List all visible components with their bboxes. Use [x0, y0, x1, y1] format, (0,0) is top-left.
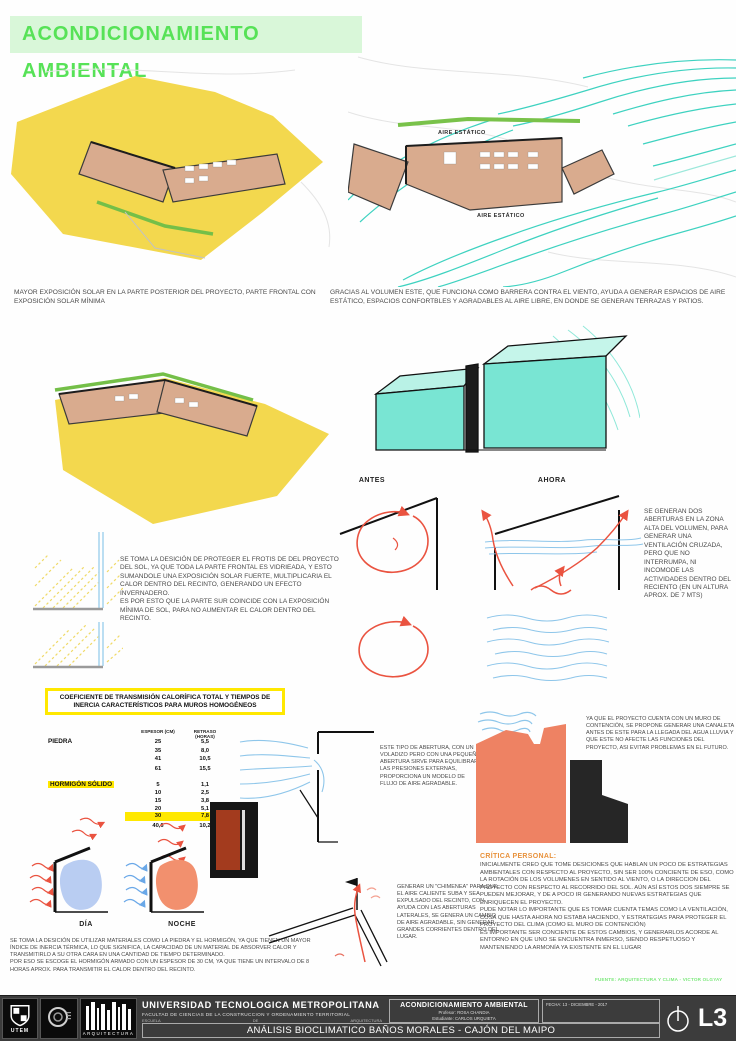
wall-section-detail [210, 802, 258, 878]
terrain-shape [476, 724, 566, 843]
table-cell: 8,0 [188, 748, 222, 754]
antes-section [340, 498, 437, 590]
col-header-retraso: RETRASO (HORAS) [188, 729, 222, 739]
university-block: UNIVERSIDAD TECNOLOGICA METROPOLITANA FA… [142, 1000, 386, 1023]
footer: UTEM ARQUITECTURA UNIVERSIDAD TECNOLOGIC… [0, 995, 736, 1041]
warm-air-blob [156, 860, 198, 910]
professor-line: Profesor: ROSA CHANDIA [390, 1010, 538, 1015]
sheet-number: L3 [698, 1004, 727, 1033]
antes-label: ANTES [332, 477, 412, 484]
solar-exposure-plan-diagram [5, 62, 335, 284]
sheet-subtitle: ANÁLISIS BIOCLIMATICO BAÑOS MORALES - CA… [142, 1023, 660, 1038]
aire-estatico-label-bottom: AIRE ESTÁTICO [477, 213, 525, 219]
date-box: FECHA: 13 - DICIEMBRE - 2017 [542, 999, 660, 1023]
facultad-circle-icon [46, 1004, 72, 1034]
table-cell: 35 [141, 748, 175, 754]
noche-label: NOCHE [152, 921, 212, 928]
noche-house [124, 848, 204, 912]
viento-caption: GRACIAS AL VOLUMEN ESTE, QUE FUNCIONA CO… [330, 289, 730, 306]
vidrio-text: SE TOMA LA DESICIÓN DE PROTEGER EL FROTI… [120, 556, 348, 624]
page-title: ACONDICIONAMIENTO AMBIENTAL [10, 16, 362, 53]
volume-massing-diagram [368, 322, 640, 474]
student-line: Estudiante: CARLOS URQUIETA [390, 1016, 538, 1021]
project-title: ACONDICIONAMIENTO AMBIENTAL [390, 1002, 538, 1009]
utem-logo-text: UTEM [11, 1028, 29, 1034]
ventilation-sections-diagram [335, 490, 645, 695]
cool-air-blob [60, 860, 102, 910]
fuente-line: FUENTE: ARQUITECTURA Y CLIMA - VICTOR OL… [595, 977, 735, 982]
arquitectura-logo-text: ARQUITECTURA [83, 1031, 134, 1036]
facultad-logo [40, 998, 78, 1039]
poster-board: { "title": "ACONDICIONAMIENTO AMBIENTAL"… [0, 0, 736, 1040]
table-cell: 15,5 [188, 766, 222, 772]
aire-estatico-label-top: AIRE ESTÁTICO [438, 130, 486, 136]
material-hormigon: HORMIGÓN SÓLIDO [48, 781, 114, 788]
chimney-structure [269, 878, 387, 966]
ahora-label: AHORA [512, 477, 592, 484]
chimney-diagram [265, 870, 395, 972]
chimney-flag [345, 878, 357, 886]
critica-texto: INICIALMENTE CREO QUE TOME DESICIONES QU… [480, 862, 736, 952]
col-header-espesor: ESPESOR (CM) [141, 729, 175, 734]
ventilacion-nota: SE GENERAN DOS ABERTURAS EN LA ZONA ALTA… [644, 508, 734, 601]
project-box: ACONDICIONAMIENTO AMBIENTAL Profesor: RO… [389, 999, 539, 1023]
air-flow-lines [240, 740, 324, 798]
floor-plan [348, 138, 614, 210]
heat-mark [335, 954, 344, 956]
green-edge-strip [398, 119, 580, 125]
material-piedra: PIEDRA [48, 738, 72, 745]
contention-wall-shape [570, 760, 628, 843]
ahora-wind-lines-2 [487, 615, 609, 681]
abertura-nota: ESTE TIPO DE ABERTURA, CON UN VOLADIZO P… [380, 745, 482, 788]
ahora-section [483, 496, 643, 594]
north-arrow-icon [664, 1005, 692, 1033]
table-cell: 25 [141, 739, 175, 745]
dia-label: DÍA [58, 921, 114, 928]
arquitectura-logo: ARQUITECTURA [80, 998, 137, 1039]
table-cell: 41 [141, 756, 175, 762]
wind-barrier-plan-diagram [348, 52, 736, 287]
volume-prisms [376, 336, 626, 452]
exhaust-curls [367, 888, 380, 898]
table-cell: 5,5 [188, 739, 222, 745]
muro-nota: YA QUE EL PROYECTO CUENTA CON UN MURO DE… [586, 716, 734, 752]
dia-house [30, 848, 108, 912]
table-cell: 1,1 [188, 782, 222, 788]
utem-logo: UTEM [2, 998, 38, 1039]
critica-heading: CRÍTICA PERSONAL: [480, 853, 556, 860]
glass-lines [99, 532, 103, 666]
faculty-line: FACULTAD DE CIENCIAS DE LA CONSTRUCCION … [142, 1012, 386, 1017]
solar-exposure-plan-diagram-2 [25, 338, 335, 533]
table-cell: 61 [141, 766, 175, 772]
rain-water-lines [478, 712, 536, 732]
sheet-number-box: L3 [664, 998, 734, 1039]
dia-noche-diagram [28, 796, 268, 936]
solar-caption: MAYOR EXPOSICIÓN SOLAR EN LA PARTE POSTE… [14, 289, 326, 306]
antes-loop-2 [359, 622, 428, 677]
table-cell: 5 [141, 782, 175, 788]
wall-section-lines [300, 732, 374, 842]
glass-panel-detail [33, 528, 123, 670]
base-lines [33, 609, 103, 667]
arquitectura-bars-icon [84, 1002, 134, 1030]
utem-shield-icon [9, 1004, 31, 1028]
university-name: UNIVERSIDAD TECNOLOGICA METROPOLITANA [142, 1000, 386, 1010]
table-cell: 10,5 [188, 756, 222, 762]
